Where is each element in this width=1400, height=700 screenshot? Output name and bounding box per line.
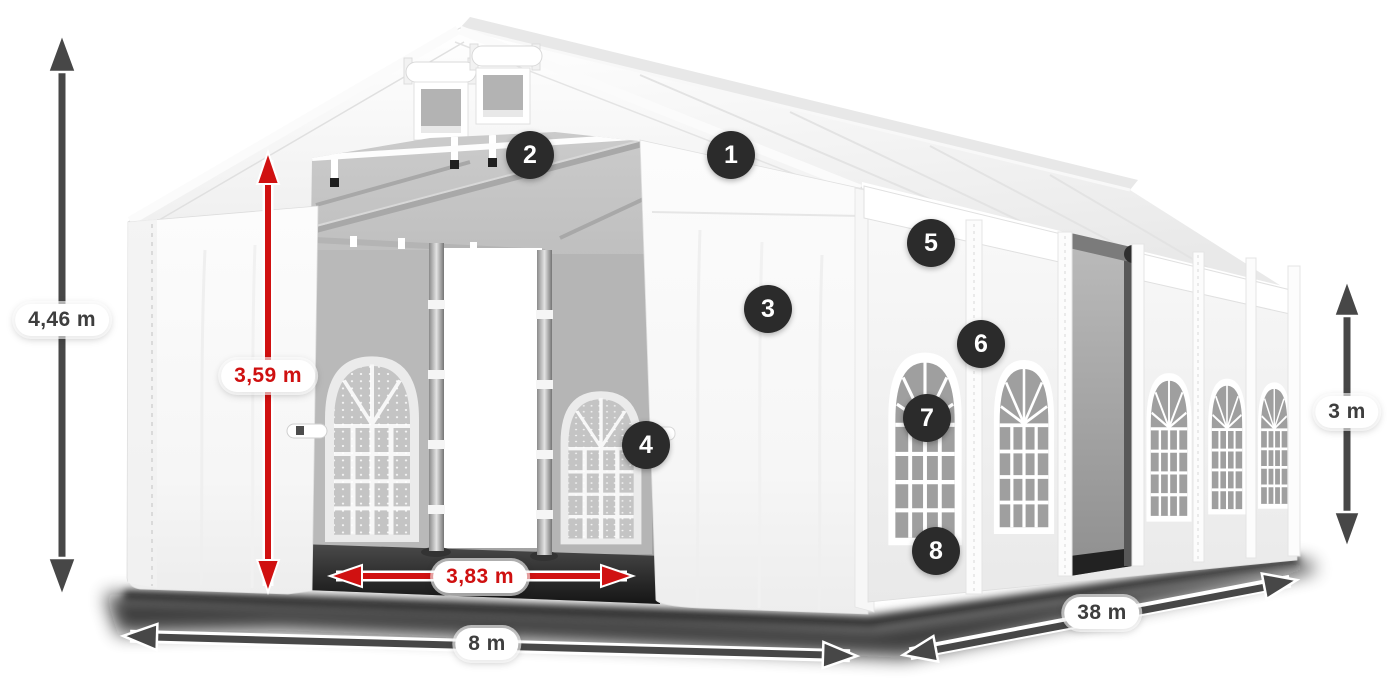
dimension-entrance-height: 3,59 m (221, 360, 315, 392)
interior-window (325, 356, 419, 542)
see-through-opening (442, 248, 542, 548)
side-window (1146, 373, 1191, 521)
door-handle-strap (287, 424, 327, 438)
front-right-door-panel (640, 140, 868, 614)
dimension-side-wall-height: 3 m (1315, 396, 1378, 428)
vent-roller-icon (406, 62, 476, 82)
callout-badge-5[interactable]: 5 (907, 219, 955, 267)
interior-window (561, 391, 642, 544)
side-window (888, 353, 961, 546)
vent-window-left (404, 58, 476, 140)
vent-roller-icon (472, 46, 542, 66)
callout-badge-2[interactable]: 2 (506, 131, 554, 179)
tent-diagram: 4,46 m 3,59 m 3,83 m 8 m 38 m 3 m 1 2 3 … (0, 0, 1400, 700)
tent-illustration (0, 0, 1400, 700)
callout-badge-3[interactable]: 3 (744, 285, 792, 333)
front-entrance-interior (300, 120, 670, 615)
callout-badge-4[interactable]: 4 (622, 421, 670, 469)
side-window (994, 360, 1054, 534)
callout-badge-6[interactable]: 6 (957, 320, 1005, 368)
dimension-entrance-width: 3,83 m (433, 561, 527, 593)
side-entrance-opening (1064, 232, 1142, 576)
callout-badge-8[interactable]: 8 (912, 527, 960, 575)
callout-badge-7[interactable]: 7 (903, 394, 951, 442)
front-left-wall-panel (127, 206, 327, 594)
dimension-length: 38 m (1064, 597, 1139, 629)
dimension-total-height: 4,46 m (15, 304, 109, 336)
callout-badge-1[interactable]: 1 (707, 131, 755, 179)
dimension-front-width: 8 m (455, 628, 518, 660)
side-window (1208, 379, 1246, 515)
side-window (1258, 382, 1290, 508)
